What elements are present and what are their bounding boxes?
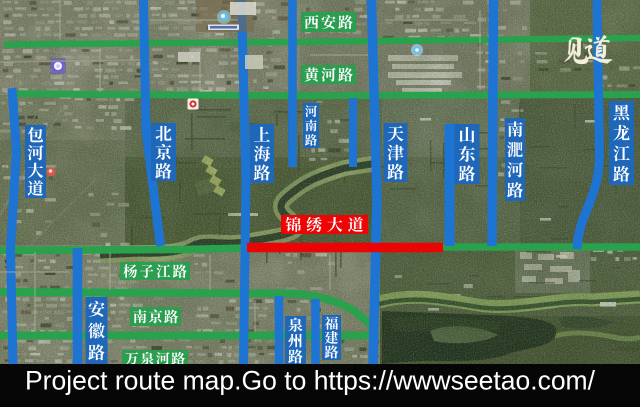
- svg-text:Project route map.Go to https:: Project route map.Go to https://wwwseeta…: [25, 366, 596, 396]
